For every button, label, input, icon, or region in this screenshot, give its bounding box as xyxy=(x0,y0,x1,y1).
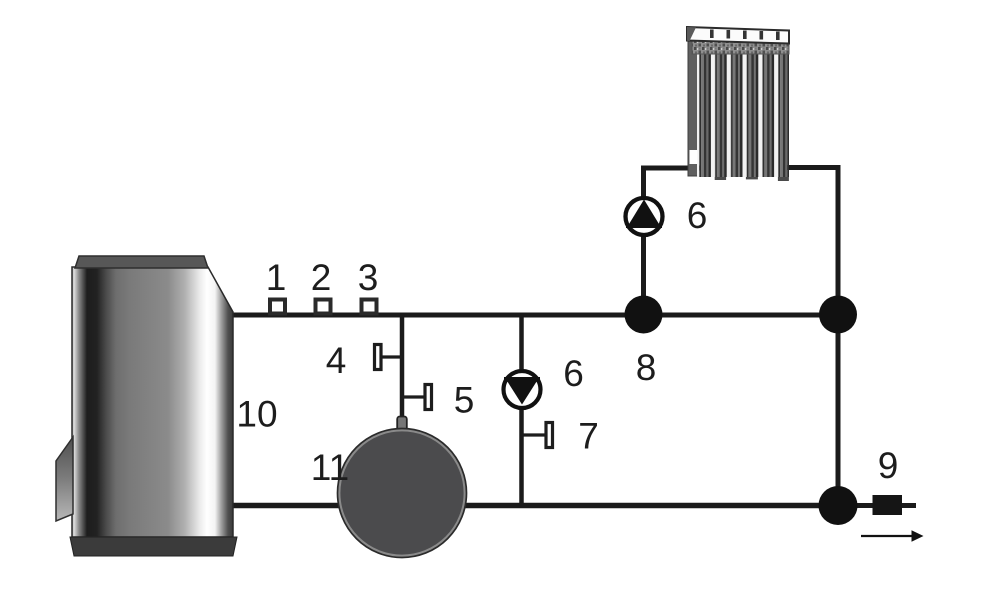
svg-text:11: 11 xyxy=(311,447,349,488)
svg-text:8: 8 xyxy=(636,347,657,388)
svg-text:5: 5 xyxy=(454,379,475,420)
svg-text:1: 1 xyxy=(266,257,287,298)
svg-text:10: 10 xyxy=(236,393,277,434)
svg-text:6: 6 xyxy=(687,195,708,236)
svg-text:3: 3 xyxy=(358,257,379,298)
svg-text:4: 4 xyxy=(326,340,347,381)
svg-text:2: 2 xyxy=(311,257,332,298)
svg-text:7: 7 xyxy=(578,415,599,456)
svg-text:6: 6 xyxy=(563,353,584,394)
svg-text:9: 9 xyxy=(878,445,899,486)
